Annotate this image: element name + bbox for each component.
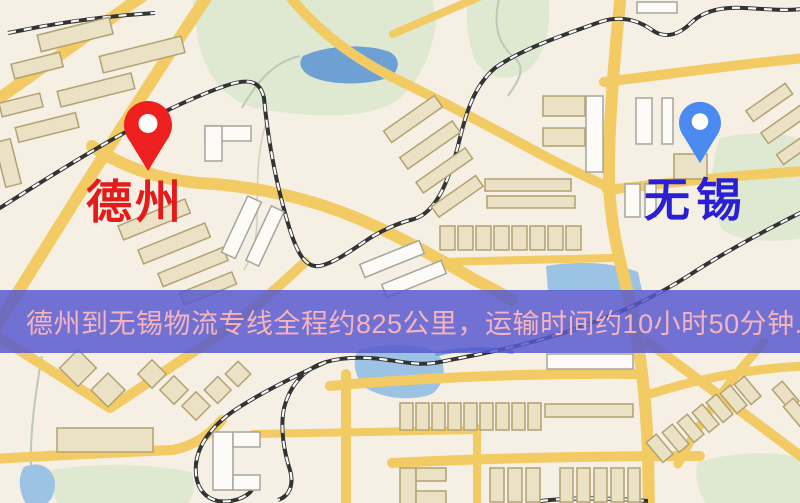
destination-city-label: 无锡 [644,177,748,223]
origin-pin-shape [124,101,172,171]
route-info-banner: 德州到无锡物流专线全程约825公里，运输时间约10小时50分钟. [0,290,800,353]
map-canvas [0,0,800,503]
route-info-text: 德州到无锡物流专线全程约825公里，运输时间约10小时50分钟. [0,302,800,341]
destination-pin-icon[interactable] [679,98,721,167]
origin-pin-icon[interactable] [124,101,172,171]
destination-pin-shape [679,102,721,163]
logistics-route-map: 德州 无锡 德州到无锡物流专线全程约825公里，运输时间约10小时50分钟. [0,0,800,503]
origin-city-label: 德州 [86,179,184,225]
